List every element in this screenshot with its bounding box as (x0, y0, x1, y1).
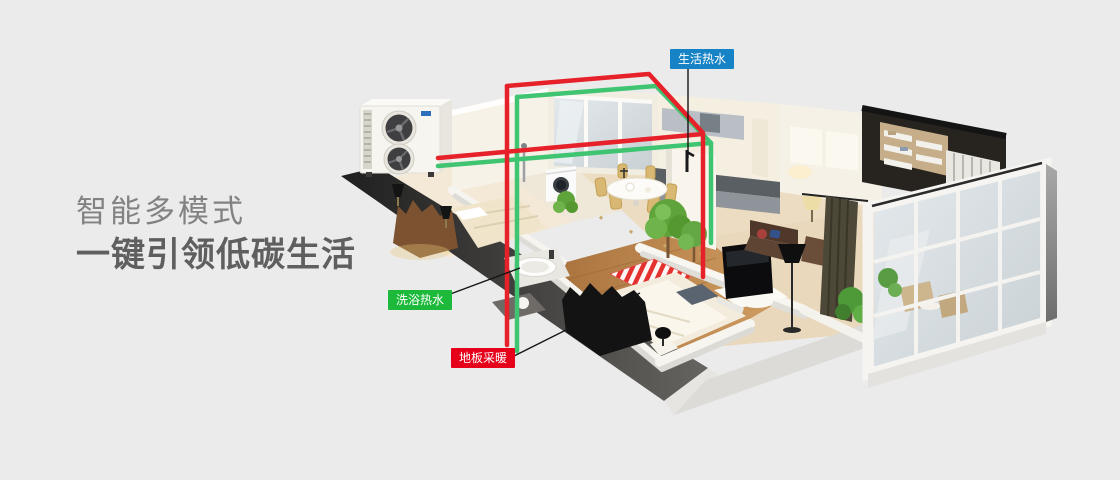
headline-line-2: 一键引领低碳生活 (76, 232, 356, 278)
headline: 智能多模式 一键引领低碳生活 (76, 192, 356, 278)
coffee-table (741, 296, 773, 308)
wall-lamp-glow (788, 165, 812, 179)
sofa-pillow (757, 229, 767, 239)
headline-line-1: 智能多模式 (76, 192, 356, 232)
brand-logo (421, 111, 431, 116)
sliding-glass-door (548, 88, 658, 176)
label-domestic-hot-water: 生活热水 (670, 49, 734, 69)
label-floor-heating: 地板采暖 (451, 348, 515, 368)
dining-table (607, 178, 667, 200)
flag-pillow (769, 229, 780, 238)
label-bathing-hot-water: 洗浴热水 (388, 290, 452, 310)
hallway-opening (752, 118, 768, 178)
floor-glow (390, 244, 450, 260)
fan-bottom (384, 144, 414, 174)
bedside-lamp (655, 327, 671, 339)
fan-top (382, 111, 416, 145)
tub-faucet (549, 250, 554, 259)
hero-banner: 智能多模式 一键引领低碳生活 生活热水 洗浴热水 地板采暖 (0, 0, 1120, 480)
window-side-face (1046, 164, 1057, 322)
